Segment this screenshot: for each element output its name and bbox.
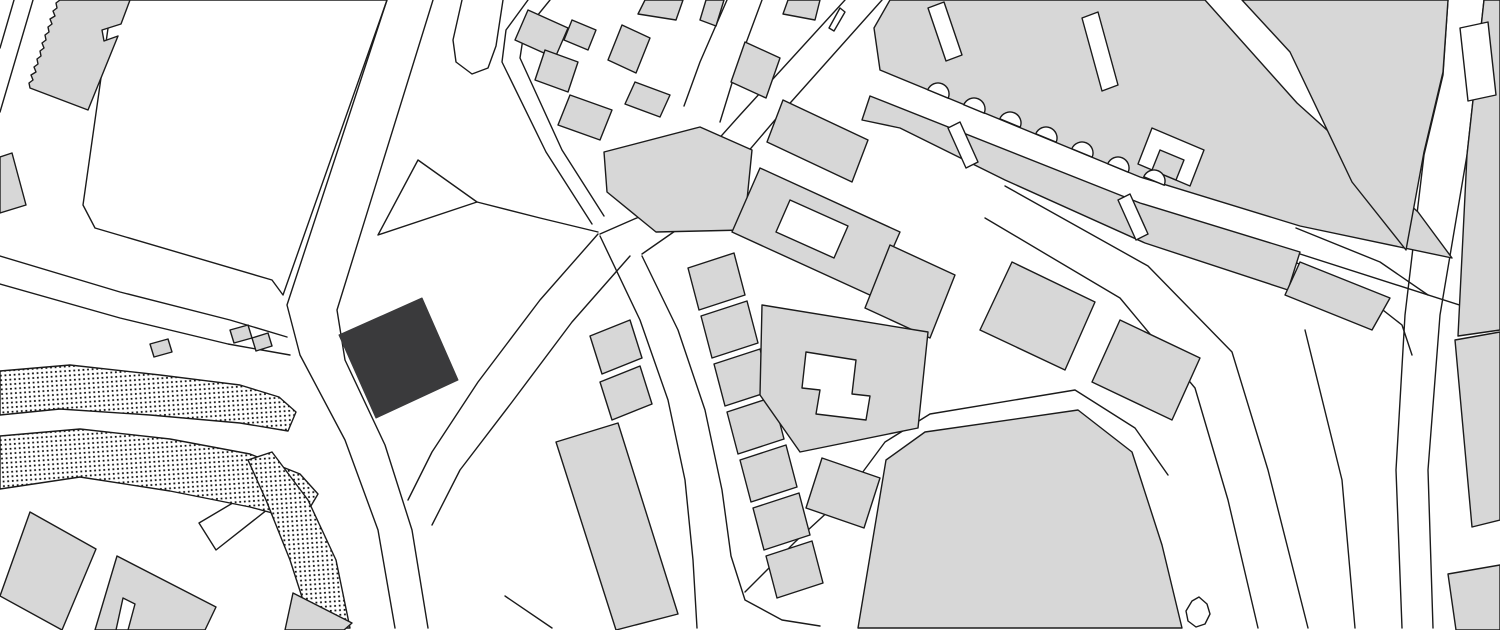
figure-ground-plan bbox=[0, 0, 1500, 630]
building-footprint bbox=[1448, 565, 1500, 630]
site-plan-map bbox=[0, 0, 1500, 630]
